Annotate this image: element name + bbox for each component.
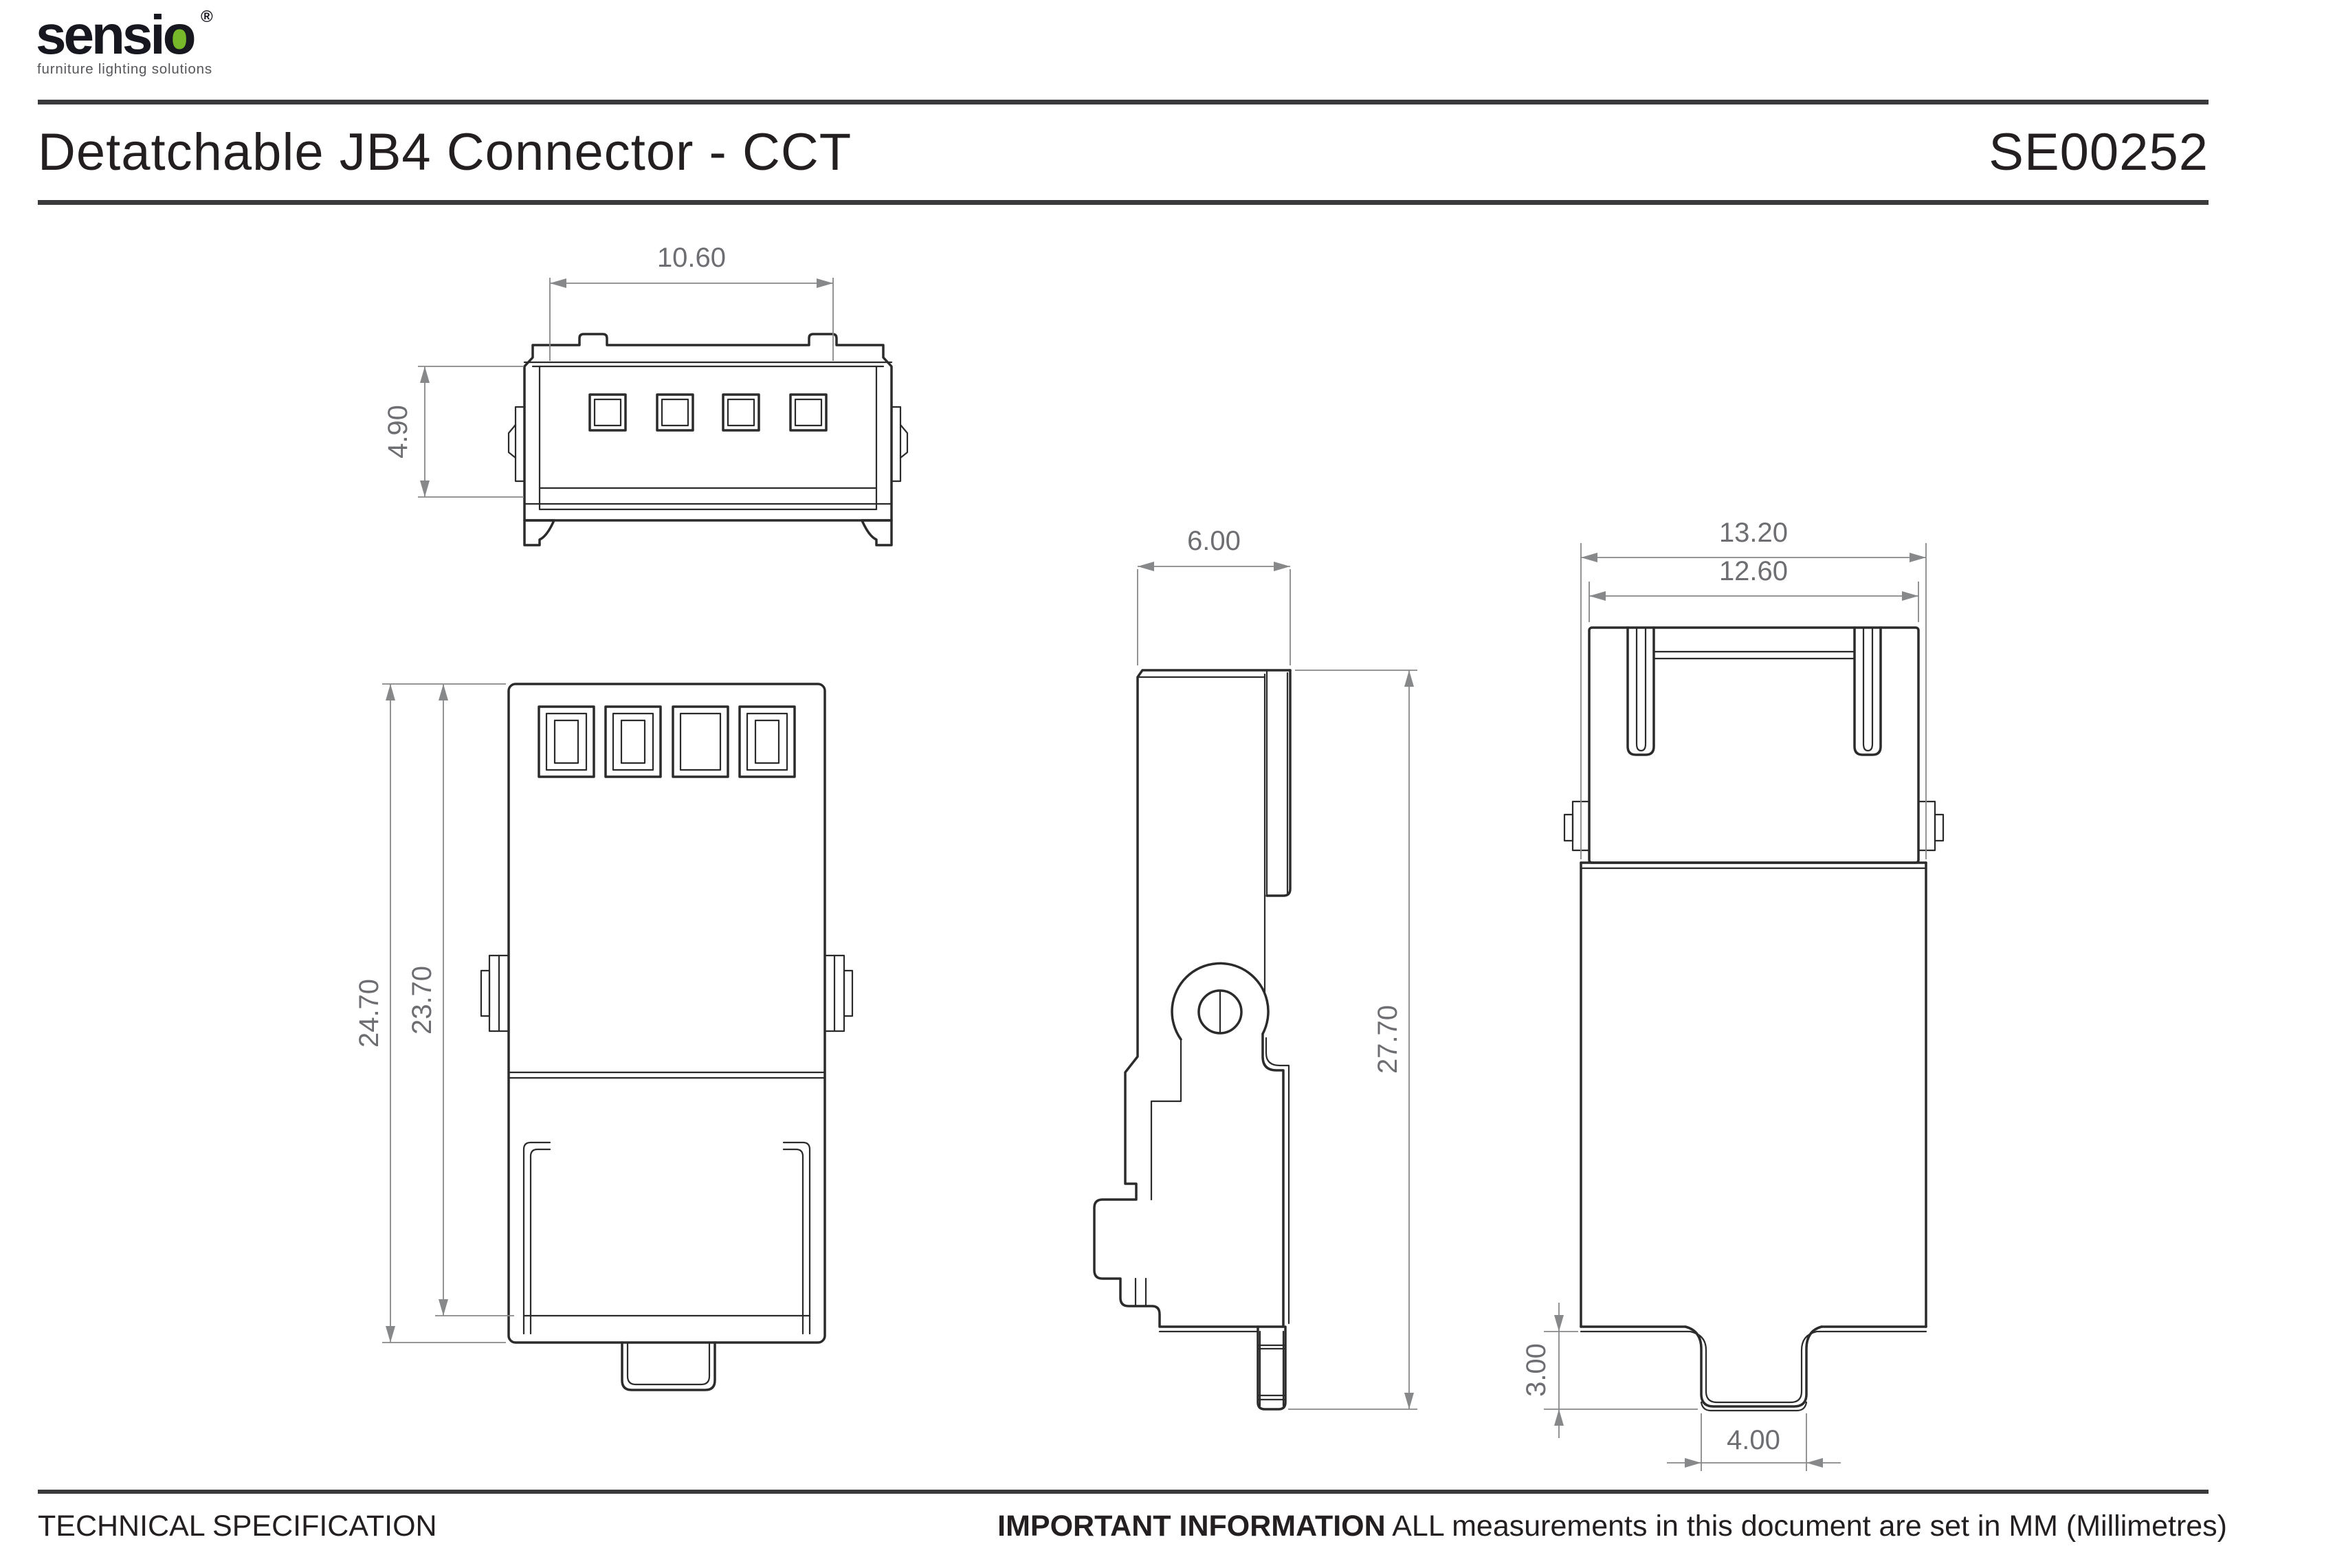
- dimension-label-opening-height: 4.90: [383, 405, 413, 459]
- dimension-label-overall-width: 13.20: [1719, 518, 1788, 548]
- page-title: Detatchable JB4 Connector - CCT: [38, 122, 852, 182]
- side-part-outline: [1094, 670, 1290, 1409]
- dimension-tab-width: 4.00: [1667, 1413, 1841, 1471]
- footer-note-text: ALL measurements in this document are se…: [1386, 1510, 2227, 1543]
- sensio-logo: sensio ® furniture lighting solutions: [36, 3, 256, 80]
- title-row: Detatchable JB4 Connector - CCT SE00252: [38, 104, 2209, 200]
- dimension-body-width: 12.60: [1589, 556, 1918, 622]
- header-rule-top: [38, 100, 2209, 104]
- footer-important-label: IMPORTANT INFORMATION: [997, 1510, 1386, 1543]
- logo-wordmark: sensio: [36, 4, 195, 65]
- side-view-drawing: 6.00 27.70: [1079, 522, 1450, 1430]
- dimension-label-side-overall-height: 27.70: [1373, 1005, 1403, 1074]
- dimension-side-overall-height: 27.70: [1288, 670, 1417, 1409]
- dimension-label-opening-width: 10.60: [657, 243, 726, 273]
- rear-view-drawing: 13.20 12.60 3.00 4.00: [1526, 522, 1980, 1485]
- footer-rule: [38, 1490, 2209, 1494]
- dimension-body-height: 23.70: [407, 684, 514, 1316]
- dimension-label-tab-height: 3.00: [1521, 1343, 1551, 1397]
- dimension-label-depth: 6.00: [1187, 526, 1241, 556]
- front-view-drawing: 24.70 23.70: [357, 660, 880, 1423]
- dimension-label-body-width: 12.60: [1719, 556, 1788, 586]
- dimension-depth: 6.00: [1138, 526, 1290, 665]
- part-number: SE00252: [1989, 122, 2209, 182]
- rear-part-outline: [1564, 628, 1943, 1411]
- front-face-pin-holes: [590, 395, 826, 430]
- header-rule-bottom: [38, 200, 2209, 205]
- dimension-label-body-height: 23.70: [407, 966, 437, 1035]
- logo-tagline: furniture lighting solutions: [37, 61, 212, 77]
- front-slots: [539, 707, 795, 777]
- technical-spec-sheet: sensio ® furniture lighting solutions De…: [0, 0, 2335, 1568]
- footer: TECHNICAL SPECIFICATION IMPORTANT INFORM…: [38, 1510, 2227, 1543]
- front-part-outline: [481, 684, 852, 1390]
- dimension-label-tab-width: 4.00: [1727, 1425, 1780, 1455]
- footer-left-label: TECHNICAL SPECIFICATION: [38, 1510, 437, 1543]
- dimension-tab-height: 3.00: [1521, 1303, 1698, 1438]
- front-face-view-drawing: 10.60 4.90: [371, 241, 921, 557]
- registered-mark-icon: ®: [201, 8, 213, 26]
- dimension-label-overall-height: 24.70: [354, 979, 384, 1048]
- front-face-part-outline: [509, 334, 907, 545]
- footer-note: IMPORTANT INFORMATION ALL measurements i…: [997, 1510, 2227, 1543]
- dimension-opening-width: 10.60: [550, 243, 833, 361]
- dimension-opening-height: 4.90: [383, 366, 524, 497]
